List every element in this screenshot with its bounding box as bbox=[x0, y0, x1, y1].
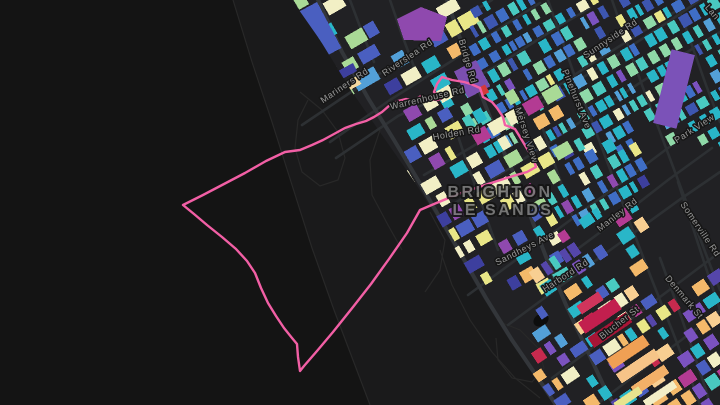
place-label-line1: BRIGHTON bbox=[447, 184, 552, 201]
map-canvas[interactable]: Mariners RdRiverslea RdBridge RdWarrenho… bbox=[0, 0, 720, 405]
place-label-line2: LE SANDS bbox=[453, 202, 554, 219]
map-screenshot: Mariners RdRiverslea RdBridge RdWarrenho… bbox=[0, 0, 720, 405]
